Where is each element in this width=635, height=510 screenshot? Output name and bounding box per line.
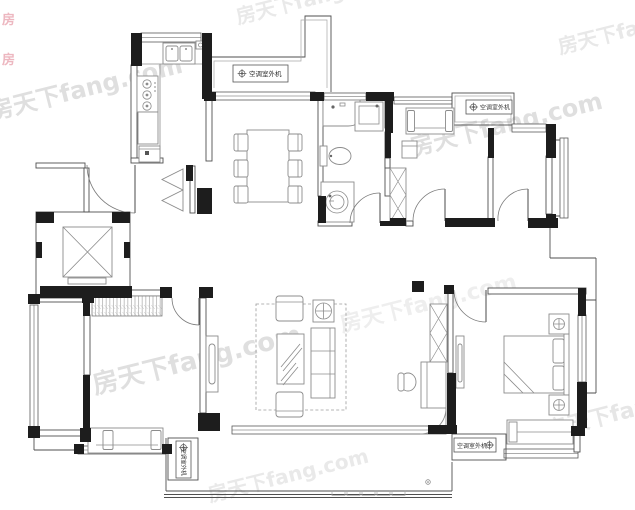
elevator [36, 212, 130, 298]
nightstand [549, 395, 569, 415]
desk-and-chair [398, 362, 446, 434]
ac-label-top-center: 空调室外机 [233, 65, 288, 82]
tall-cabinet [430, 304, 447, 362]
kitchen-counter [138, 112, 158, 144]
watermark-text: 房天下fang.com [89, 320, 304, 401]
potted-plant [313, 300, 334, 322]
kitchen-sink [163, 43, 195, 64]
window-bench [406, 108, 454, 134]
watermark-text: 房天下fang.com [555, 0, 635, 59]
ac-label-text: 空调室外机 [480, 104, 510, 112]
wardrobe-hatched [92, 296, 162, 316]
floor-plan-svg: 房天下fang.com 房天下fang.com 房天下fang.com 房天下f… [0, 0, 635, 510]
ac-label-top-right: 空调室外机 [466, 100, 512, 114]
nightstand [549, 314, 569, 334]
master-bed [504, 334, 569, 395]
refrigerator [139, 146, 160, 162]
bed-bottom-left [88, 428, 163, 453]
bathroom [320, 100, 383, 222]
armchair [276, 296, 303, 321]
dining-table [247, 130, 289, 202]
double-door-leaf [162, 169, 183, 190]
dining-area [234, 130, 302, 203]
floor-plan-canvas: 房天下fang.com 房天下fang.com 房天下fang.com 房天下f… [0, 0, 635, 510]
side-table [402, 141, 417, 158]
sofa [311, 328, 335, 398]
stove [137, 76, 158, 112]
balcony [332, 480, 430, 496]
ac-label-text: 空调室外机 [457, 442, 487, 450]
toilet [320, 146, 351, 166]
coffee-table [277, 334, 304, 385]
ac-label-balcony-left: 空调室外机 [176, 441, 191, 478]
elevator-door [68, 278, 106, 284]
tv-cabinet-master [456, 336, 464, 388]
shower [355, 102, 383, 131]
corner-logo: 房 [2, 12, 15, 28]
entry-foyer [162, 169, 183, 211]
master-bedroom [456, 314, 573, 444]
corner-logo-fragments: 房 房 [2, 12, 15, 68]
double-door-leaf [162, 190, 183, 211]
tv-cabinet-left [206, 336, 218, 392]
bay-window-bench [507, 420, 573, 444]
ac-label-bottom-right: 空调室外机 [454, 438, 496, 452]
vanity-sink [323, 100, 360, 126]
watermark-text: 房天下fang.com [233, 0, 399, 29]
ac-label-text: 空调室外机 [180, 448, 188, 476]
armchair [276, 392, 303, 417]
corner-logo: 房 [2, 52, 15, 68]
watermark-text: 房天下fang.com [337, 269, 519, 338]
ac-label-text: 空调室外机 [249, 69, 282, 78]
hall-wardrobe [390, 168, 406, 222]
